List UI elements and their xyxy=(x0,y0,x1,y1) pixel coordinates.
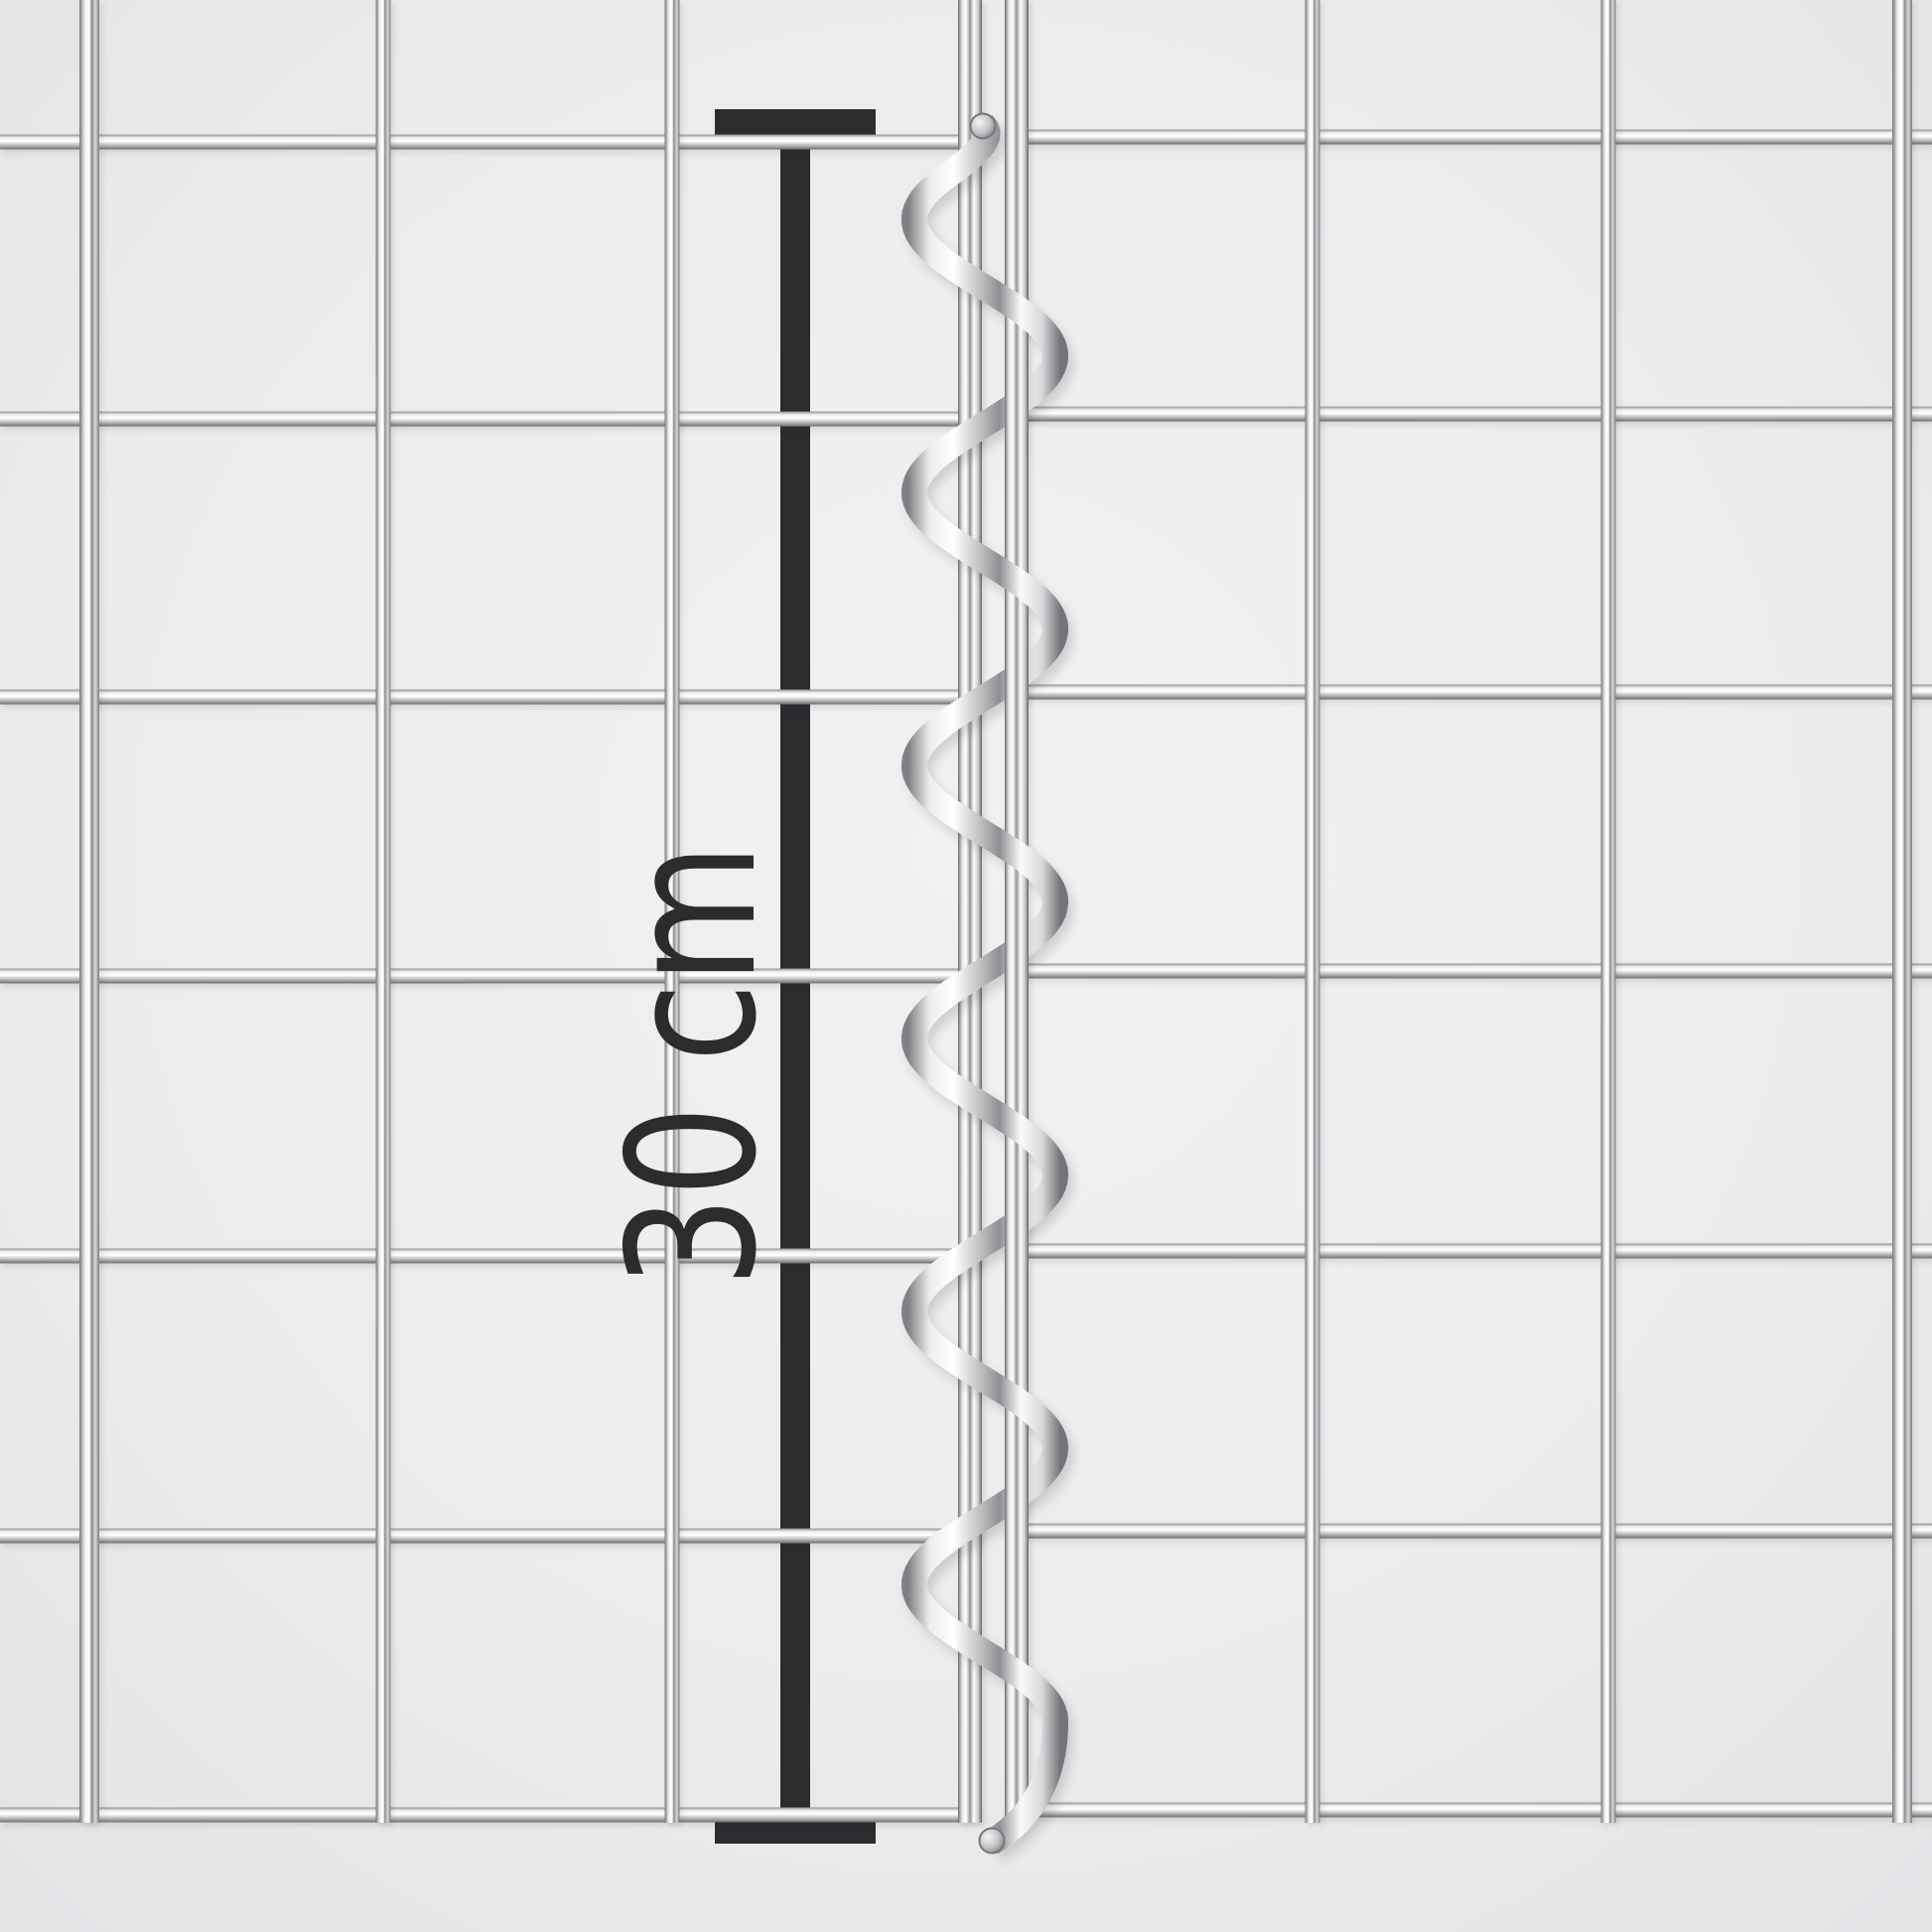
spiral-bottom-cut-end xyxy=(980,1829,1005,1854)
horizontal-wire-right-panel xyxy=(1005,964,1932,979)
horizontal-wire-left-panel xyxy=(0,969,980,984)
horizontal-wire-right-panel xyxy=(1005,1803,1932,1818)
horizontal-wire-right-panel xyxy=(1005,685,1932,700)
horizontal-wire-left-panel xyxy=(0,690,980,705)
horizontal-wire-left-panel xyxy=(0,412,980,427)
dimension-label: 30 cm xyxy=(605,845,781,1288)
horizontal-wire-right-panel xyxy=(1005,130,1932,145)
vertical-wire xyxy=(1601,0,1616,1823)
horizontal-wire-left-panel xyxy=(0,135,980,150)
horizontal-wire-left-panel xyxy=(0,1529,980,1544)
mesh-scene-canvas xyxy=(0,0,1932,1932)
vertical-wire xyxy=(1306,0,1320,1823)
horizontal-wire-right-panel xyxy=(1005,1244,1932,1259)
vertical-wire xyxy=(79,0,99,1823)
horizontal-wire-left-panel xyxy=(0,1808,980,1823)
gabion-spiral-product-image: 30 cm xyxy=(0,0,1932,1932)
vertical-wire xyxy=(376,0,391,1823)
horizontal-wire-right-panel xyxy=(1005,1524,1932,1539)
vertical-wire xyxy=(1892,0,1912,1823)
horizontal-wire-left-panel xyxy=(0,1249,980,1264)
spiral-top-cut-end xyxy=(971,114,996,139)
right-panel-edge-wire xyxy=(1005,0,1029,1823)
horizontal-wire-right-panel xyxy=(1005,407,1932,422)
